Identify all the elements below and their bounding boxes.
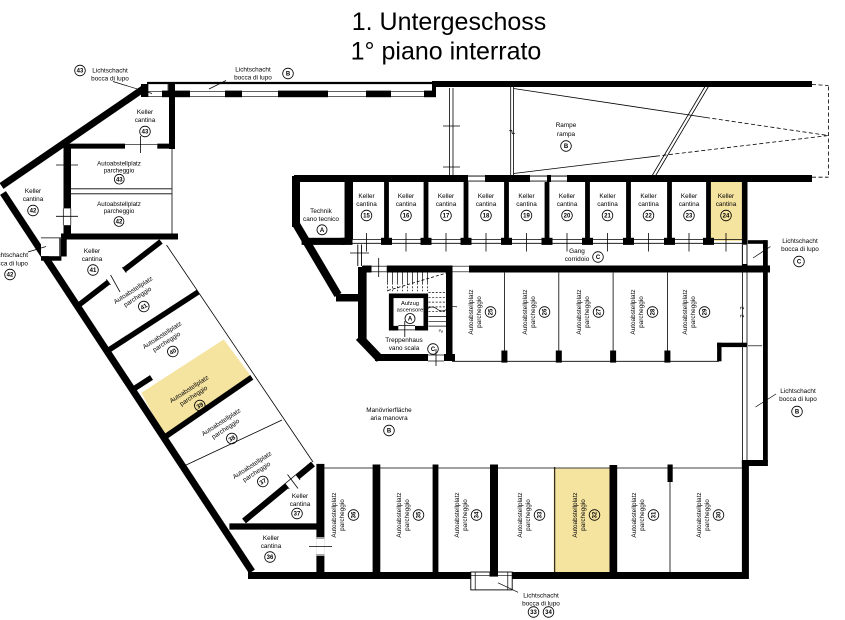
svg-text:bocca di lupo: bocca di lupo	[0, 261, 28, 268]
svg-text:28: 28	[651, 308, 657, 315]
svg-text:parcheggio: parcheggio	[104, 208, 135, 215]
svg-text:36: 36	[352, 511, 358, 518]
svg-text:bocca di lupo: bocca di lupo	[522, 601, 560, 608]
svg-text:34: 34	[545, 610, 552, 616]
svg-text:24: 24	[723, 214, 730, 220]
svg-text:42: 42	[7, 273, 14, 279]
svg-text:37: 37	[294, 512, 301, 518]
svg-text:31: 31	[652, 511, 658, 518]
svg-text:30: 30	[717, 511, 723, 518]
svg-text:cantina: cantina	[476, 201, 497, 208]
svg-text:Keller: Keller	[478, 193, 495, 200]
svg-text:22: 22	[645, 214, 652, 220]
svg-text:Lichtschacht: Lichtschacht	[0, 252, 28, 259]
svg-text:Keller: Keller	[25, 188, 42, 195]
svg-text:C: C	[431, 347, 436, 353]
svg-text:Lichtschacht: Lichtschacht	[92, 68, 128, 75]
svg-text:Keller: Keller	[599, 193, 616, 200]
svg-text:Keller: Keller	[518, 193, 535, 200]
svg-text:parcheggio: parcheggio	[339, 499, 346, 531]
svg-text:Autoabstellplatz: Autoabstellplatz	[576, 289, 583, 334]
svg-text:43: 43	[142, 130, 149, 136]
svg-text:43: 43	[77, 69, 84, 75]
svg-text:Aufzug: Aufzug	[401, 301, 419, 307]
svg-text:1. Untergeschoss: 1. Untergeschoss	[352, 8, 547, 36]
svg-text:parcheggio: parcheggio	[638, 296, 645, 328]
svg-text:cantina: cantina	[679, 201, 700, 208]
svg-text:Keller: Keller	[559, 193, 576, 200]
svg-text:B: B	[387, 429, 392, 435]
svg-text:Keller: Keller	[718, 193, 735, 200]
svg-text:Autoabstellplatz: Autoabstellplatz	[331, 492, 338, 537]
svg-text:Autoabstellplatz: Autoabstellplatz	[682, 289, 689, 334]
svg-text:35: 35	[417, 511, 423, 518]
svg-text:cantina: cantina	[261, 543, 282, 550]
svg-text:cantina: cantina	[23, 196, 44, 203]
svg-text:33: 33	[538, 511, 544, 518]
svg-text:Technik: Technik	[310, 208, 332, 215]
svg-text:parcheggio: parcheggio	[690, 296, 697, 328]
svg-text:bocca di lupo: bocca di lupo	[779, 396, 817, 403]
svg-text:Keller: Keller	[358, 193, 375, 200]
svg-text:15: 15	[363, 214, 370, 220]
svg-text:ascensore: ascensore	[397, 308, 424, 314]
svg-text:Autoabstellplatz: Autoabstellplatz	[522, 289, 529, 334]
svg-text:Autoabstellplatz: Autoabstellplatz	[517, 492, 524, 537]
svg-text:17: 17	[443, 214, 450, 220]
svg-text:Autoabstellplatz: Autoabstellplatz	[396, 492, 403, 537]
svg-text:26: 26	[543, 308, 549, 315]
svg-text:parcheggio: parcheggio	[704, 499, 711, 531]
svg-text:C: C	[797, 260, 802, 266]
svg-text:16: 16	[403, 214, 410, 220]
svg-text:Autoabstellplatz: Autoabstellplatz	[97, 160, 141, 167]
svg-text:Keller: Keller	[292, 493, 309, 500]
svg-text:Manövrierfläche: Manövrierfläche	[366, 407, 412, 414]
svg-text:Lichtschacht: Lichtschacht	[523, 593, 559, 600]
svg-text:cantina: cantina	[557, 201, 578, 208]
svg-text:bocca di lupo: bocca di lupo	[234, 75, 272, 82]
svg-text:Autoabstellplatz: Autoabstellplatz	[572, 492, 579, 537]
svg-text:cantina: cantina	[290, 501, 311, 508]
svg-text:corridoio: corridoio	[565, 256, 590, 263]
svg-text:Autoabstellplatz: Autoabstellplatz	[696, 492, 703, 537]
svg-text:2: 2	[740, 306, 746, 309]
svg-text:Treppenhaus: Treppenhaus	[385, 337, 422, 344]
svg-text:A: A	[408, 317, 413, 323]
svg-text:cantina: cantina	[396, 201, 417, 208]
svg-text:36: 36	[267, 555, 274, 561]
svg-text:Keller: Keller	[263, 535, 280, 542]
svg-text:parcheggio: parcheggio	[584, 296, 591, 328]
svg-text:parcheggio: parcheggio	[404, 499, 411, 531]
svg-text:42: 42	[30, 209, 37, 215]
svg-text:Autoabstellplatz: Autoabstellplatz	[631, 492, 638, 537]
svg-text:34: 34	[475, 511, 481, 518]
svg-text:Keller: Keller	[640, 193, 657, 200]
svg-text:cano tecnico: cano tecnico	[303, 216, 339, 223]
svg-text:parcheggio: parcheggio	[530, 296, 537, 328]
svg-text:B: B	[564, 144, 569, 150]
svg-text:bocca di lupo: bocca di lupo	[91, 76, 129, 83]
svg-text:parcheggio: parcheggio	[462, 499, 469, 531]
svg-text:cantina: cantina	[135, 117, 156, 124]
svg-text:B: B	[795, 410, 800, 416]
svg-text:25: 25	[489, 308, 495, 315]
svg-text:Keller: Keller	[84, 248, 101, 255]
svg-text:1° piano interrato: 1° piano interrato	[351, 38, 542, 66]
svg-text:parcheggio: parcheggio	[580, 499, 587, 531]
svg-text:41: 41	[90, 268, 97, 274]
svg-text:C: C	[596, 255, 601, 261]
svg-text:Keller: Keller	[398, 193, 415, 200]
svg-text:Lichtschacht: Lichtschacht	[780, 388, 816, 395]
svg-text:18: 18	[483, 214, 490, 220]
svg-text:27: 27	[597, 308, 603, 315]
svg-text:parcheggio: parcheggio	[525, 499, 532, 531]
svg-text:Keller: Keller	[681, 193, 698, 200]
svg-text:rampa: rampa	[557, 131, 576, 138]
svg-text:parcheggio: parcheggio	[104, 168, 135, 175]
svg-text:cantina: cantina	[597, 201, 618, 208]
svg-text:21: 21	[604, 214, 611, 220]
svg-text:cantina: cantina	[356, 201, 377, 208]
svg-text:Lichtschacht: Lichtschacht	[782, 238, 818, 245]
svg-text:19: 19	[523, 214, 530, 220]
svg-text:29: 29	[703, 308, 709, 315]
svg-text:Autoabstellplatz: Autoabstellplatz	[454, 492, 461, 537]
svg-text:cantina: cantina	[436, 201, 457, 208]
svg-text:parcheggio: parcheggio	[639, 499, 646, 531]
svg-text:Gang: Gang	[569, 248, 585, 255]
svg-text:cantina: cantina	[82, 256, 103, 263]
svg-text:Keller: Keller	[137, 109, 154, 116]
svg-text:42: 42	[116, 220, 123, 226]
svg-text:parcheggio: parcheggio	[476, 296, 483, 328]
svg-text:vano scala: vano scala	[389, 345, 420, 352]
svg-text:2: 2	[740, 314, 746, 317]
svg-text:Keller: Keller	[438, 193, 455, 200]
svg-text:cantina: cantina	[638, 201, 659, 208]
svg-text:A: A	[320, 228, 325, 234]
svg-text:23: 23	[686, 214, 693, 220]
svg-text:20: 20	[564, 214, 571, 220]
svg-text:Autoabstellplatz: Autoabstellplatz	[97, 201, 141, 208]
svg-text:Rampe: Rampe	[556, 122, 577, 129]
svg-text:43: 43	[116, 177, 123, 183]
svg-text:bocca di lupo: bocca di lupo	[781, 246, 819, 253]
svg-text:Autoabstellplatz: Autoabstellplatz	[630, 289, 637, 334]
svg-text:B: B	[286, 72, 291, 78]
svg-text:aria manovra: aria manovra	[370, 415, 408, 422]
svg-text:cantina: cantina	[716, 201, 737, 208]
svg-text:Autoabstellplatz: Autoabstellplatz	[468, 289, 475, 334]
svg-text:33: 33	[530, 610, 537, 616]
svg-text:32: 32	[593, 511, 599, 518]
svg-text:Lichtschacht: Lichtschacht	[235, 67, 271, 74]
svg-text:cantina: cantina	[516, 201, 537, 208]
